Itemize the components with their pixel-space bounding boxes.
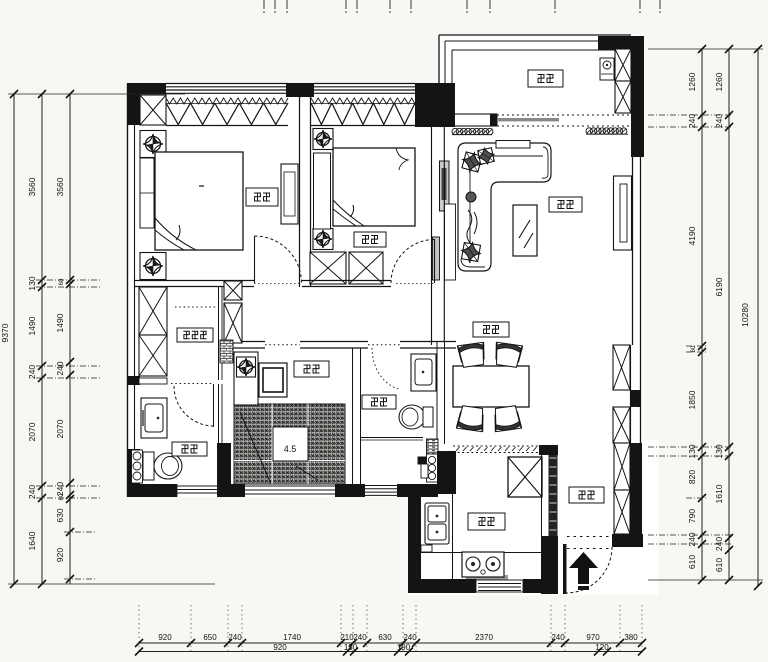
svg-text:1610: 1610 (714, 484, 724, 503)
svg-text:1740: 1740 (283, 633, 301, 642)
svg-text:6190: 6190 (714, 277, 724, 296)
svg-text:630: 630 (55, 508, 65, 522)
svg-text:920: 920 (273, 643, 287, 652)
svg-text:790: 790 (687, 509, 697, 523)
svg-text:240: 240 (714, 114, 724, 128)
svg-text:1260: 1260 (687, 72, 697, 91)
svg-text:2070: 2070 (55, 419, 65, 438)
svg-text:130: 130 (344, 643, 358, 652)
svg-text:1490: 1490 (55, 313, 65, 332)
svg-text:240: 240 (55, 361, 65, 375)
svg-text:190: 190 (397, 643, 411, 652)
svg-text:130: 130 (27, 276, 37, 290)
svg-text:2070: 2070 (27, 422, 37, 441)
svg-text:60: 60 (59, 493, 65, 500)
svg-text:1260: 1260 (714, 72, 724, 91)
svg-text:920: 920 (55, 548, 65, 562)
svg-text:3560: 3560 (27, 177, 37, 196)
svg-text:120: 120 (595, 643, 609, 652)
svg-text:820: 820 (687, 470, 697, 484)
svg-text:240: 240 (403, 633, 417, 642)
svg-text:60: 60 (691, 345, 697, 352)
svg-text:920: 920 (158, 633, 172, 642)
svg-text:610: 610 (714, 558, 724, 572)
svg-text:10280: 10280 (740, 303, 750, 327)
svg-text:630: 630 (378, 633, 392, 642)
svg-text:2370: 2370 (475, 633, 493, 642)
svg-text:1640: 1640 (27, 531, 37, 550)
svg-text:970: 970 (586, 633, 600, 642)
svg-text:1490: 1490 (27, 316, 37, 335)
svg-text:240: 240 (551, 633, 565, 642)
svg-text:4.5: 4.5 (284, 444, 297, 454)
svg-text:650: 650 (203, 633, 217, 642)
svg-text:60: 60 (59, 278, 65, 285)
svg-text:1850: 1850 (687, 390, 697, 409)
svg-text:240: 240 (27, 485, 37, 499)
svg-text:210: 210 (340, 633, 354, 642)
svg-text:130: 130 (714, 444, 724, 458)
svg-text:3560: 3560 (55, 177, 65, 196)
svg-text:240: 240 (714, 537, 724, 551)
svg-text:9370: 9370 (0, 323, 10, 342)
svg-text:240: 240 (228, 633, 242, 642)
svg-text:130: 130 (687, 444, 697, 458)
svg-text:4190: 4190 (687, 226, 697, 245)
svg-text:610: 610 (687, 555, 697, 569)
svg-text:240: 240 (687, 114, 697, 128)
svg-text:240: 240 (27, 365, 37, 379)
svg-text:240: 240 (353, 633, 367, 642)
svg-text:240: 240 (687, 532, 697, 546)
svg-text:380: 380 (624, 633, 638, 642)
